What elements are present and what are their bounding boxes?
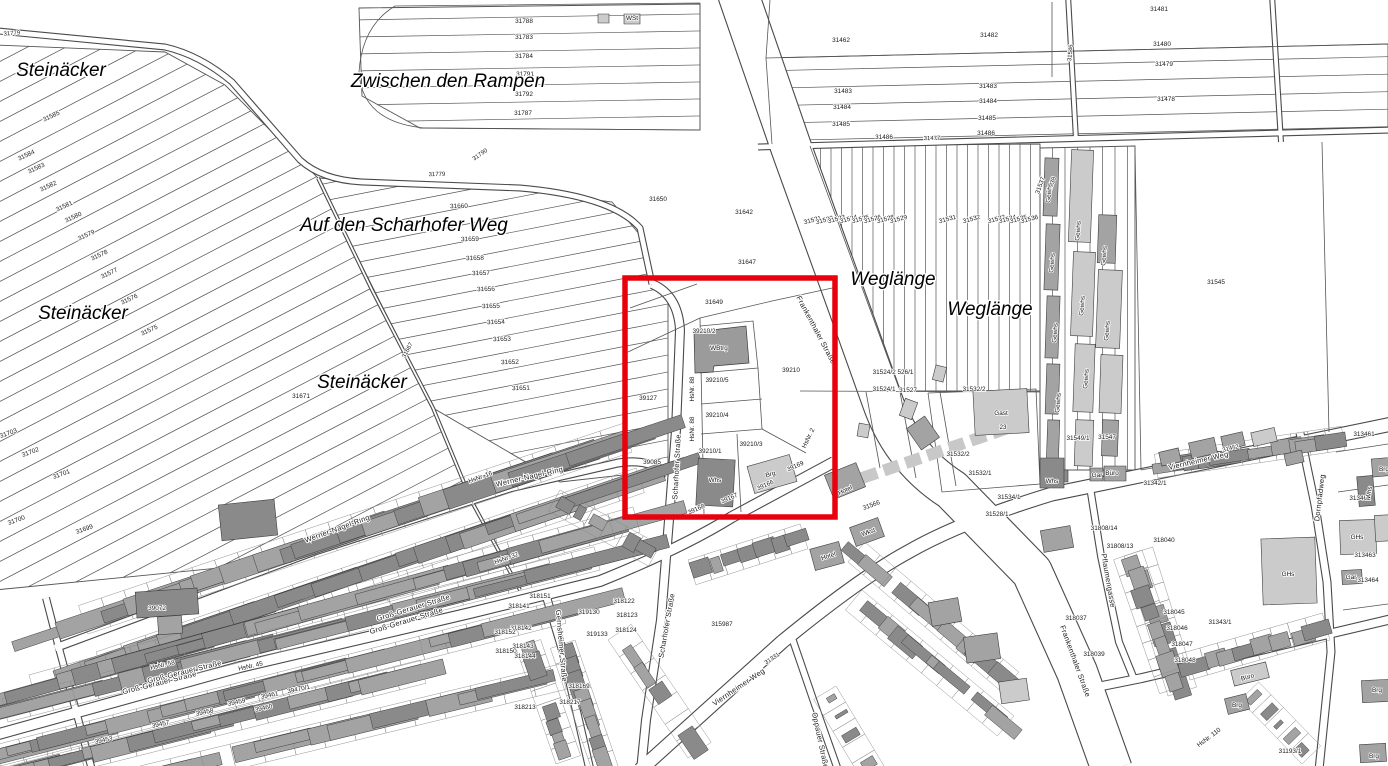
parcel-number-label: 318047: [1171, 641, 1193, 648]
parcel-number-label: 31484: [833, 104, 851, 111]
parcel-number-label: 39210/4: [705, 412, 729, 419]
area-label: Auf den Scharhofer Weg: [299, 215, 508, 236]
parcel-number-label: 318037: [1065, 615, 1087, 622]
parcel-number-label: 318039: [1083, 651, 1105, 658]
parcel-number-label: 31527: [899, 387, 917, 394]
building-footprint: [157, 615, 182, 635]
parcel-number-label: 31545: [1207, 279, 1225, 286]
parcel-number-label: 318144: [514, 653, 536, 660]
house-number-label: HsNr. 88: [689, 416, 696, 441]
parcel-number-label: 31788: [515, 18, 533, 25]
building-label: Whs: [709, 477, 722, 484]
area-label: Weglänge: [947, 299, 1032, 320]
parcel-number-label: 31652: [501, 359, 519, 367]
building-footprint: [963, 633, 1000, 663]
building-footprint: [928, 598, 962, 627]
parcel-number-label: 31649: [705, 299, 723, 306]
parcel-number-label: 31532/2: [962, 386, 986, 393]
parcel-number-label: 31654: [487, 319, 505, 327]
building-label: Gast: [994, 410, 1008, 417]
parcel-number-label: 31653: [493, 336, 511, 344]
parcel-number-label: 39210/3: [739, 441, 763, 448]
parcel-number-label: 31343/1: [1208, 619, 1232, 626]
building-footprint: [218, 499, 277, 541]
parcel-number-label: 31784: [515, 53, 533, 60]
parcel-number-label: 31483: [834, 88, 852, 95]
parcel-number-label: 318151: [529, 593, 551, 600]
parcel-number-label: 31660: [450, 203, 468, 211]
parcel-number-label: 31659: [461, 236, 479, 244]
parcel-number-label: 31524/1: [872, 386, 896, 393]
parcel-number-label: 313464: [1357, 577, 1379, 584]
parcel-number-label: 31671: [292, 393, 310, 400]
building-footprint: [1046, 420, 1060, 464]
parcel-number-label: 31193/1: [1279, 748, 1302, 755]
parcel-number-label: 31532/1: [968, 470, 992, 477]
parcel-number-label: 31342/1: [1143, 480, 1167, 487]
building-footprint: [1071, 252, 1096, 337]
building-footprint: [999, 678, 1030, 704]
building-footprint: [1074, 420, 1094, 467]
parcel-number-label: 31486: [875, 134, 893, 141]
parcel-number-label: 318122: [613, 598, 635, 605]
area-label: Steinäcker: [317, 372, 407, 393]
parcel-number-label: 39210/5: [705, 377, 729, 384]
parcel-number-label: 31524/2 526/1: [873, 369, 914, 376]
parcel-number-label: 31481: [1150, 6, 1168, 13]
parcel-number-label: 315987: [711, 621, 733, 628]
road-number-label: 31779: [429, 172, 447, 179]
parcel-number-label: 31808/14: [1091, 525, 1118, 532]
building-label: Büro: [1105, 470, 1119, 477]
parcel-number-label: 31480: [1153, 41, 1171, 48]
building-label: Brg: [1232, 702, 1242, 709]
parcel-number-label: 39127: [639, 395, 657, 402]
building-footprint: [1374, 514, 1388, 541]
parcel-number-label: 31549/1: [1066, 435, 1090, 442]
building-label: Brg: [1379, 466, 1388, 473]
parcel-number-label: 31783: [515, 34, 533, 41]
building-label: GHs: [1282, 571, 1295, 578]
parcel-number-label: 31483: [979, 83, 997, 90]
parcel-number-label: 31656: [477, 286, 495, 294]
parcel-number-label: 31534/1: [997, 494, 1021, 501]
parcel-number-label: 31479: [1155, 61, 1173, 68]
building-label: WBtrg: [710, 345, 728, 352]
house-number-label: HsNr. 88: [689, 376, 696, 401]
parcel-number-label: 31651: [512, 385, 530, 393]
parcel-number-label: 31462: [832, 37, 850, 44]
parcel-number-label: 318046: [1166, 625, 1188, 632]
parcel-number-label: 31528/1: [985, 511, 1009, 518]
parcel-number-label: 318169: [568, 683, 590, 690]
parcel-number-label: 318217: [559, 699, 581, 706]
parcel-number-label: 31655: [482, 303, 500, 311]
parcel-number-label: 31657: [472, 270, 490, 278]
parcel-number-label: 313461: [1353, 431, 1375, 438]
building-footprint: [135, 588, 199, 618]
parcel-number-label: 31792: [515, 91, 533, 98]
parcel-number-label: 318152: [494, 629, 516, 636]
parcel-number-label: 31642: [735, 209, 753, 216]
parcel-number-label: 31532/2: [946, 451, 970, 458]
parcel-number-label: 31486: [977, 130, 995, 137]
parcel-number-label: 39085: [643, 459, 661, 466]
parcel-number-label: 318141: [508, 603, 530, 610]
parcel-number-label: 31808/13: [1107, 543, 1134, 550]
building-label: Brg: [1372, 687, 1382, 694]
parcel-number-label: 318045: [1163, 609, 1185, 616]
cadastral-map-canvas[interactable]: 3158531584315833158231581315803157931578…: [0, 0, 1388, 766]
area-label: Steinäcker: [16, 60, 106, 81]
parcel-number-label: 31658: [466, 255, 484, 263]
building-label: 23: [999, 424, 1007, 431]
building-label: Brg: [1369, 753, 1379, 760]
building-label: Gar: [1092, 472, 1104, 479]
parcel-number-label: 39210: [782, 367, 800, 374]
parcel-number-label: 39072: [148, 605, 166, 612]
parcel-number-label: 31650: [649, 196, 667, 203]
parcel-number-label: 31647: [738, 259, 756, 266]
parcel-number-label: 318040: [1153, 537, 1175, 544]
parcel-number-label: 39210/2: [692, 328, 716, 335]
building-label: GHs: [1351, 534, 1364, 541]
parcel-number-label: 318048: [1174, 657, 1196, 664]
parcel-number-label: 318123: [616, 612, 638, 619]
parcel-number-label: 31482: [980, 32, 998, 39]
parcel-number-label: 31787: [514, 110, 532, 117]
building-footprint: [1099, 355, 1123, 414]
building-footprint: [598, 14, 609, 23]
parcel-number-label: 31547: [1098, 434, 1116, 441]
parcel-number-label: 319133: [586, 631, 608, 638]
parcel-number-label: 318124: [615, 627, 637, 634]
parcel-number-label: 31485: [832, 121, 850, 128]
area-label: Weglänge: [850, 269, 935, 290]
parcel-number-label: 319130: [578, 609, 600, 616]
building-label: WSt: [626, 15, 638, 22]
road-number-label: 31477: [924, 136, 941, 142]
parcel-number-label: 39210/1: [698, 448, 722, 455]
parcel-number-label: 31478: [1157, 96, 1175, 103]
parcel-number-label: 31485: [978, 115, 996, 122]
building-footprint: [857, 423, 870, 438]
map-viewport[interactable]: 3158531584315833158231581315803157931578…: [0, 0, 1388, 766]
building-label: Whs: [1046, 478, 1059, 485]
parcel-number-label: 318213: [514, 704, 536, 711]
parcel-number-label: 31484: [979, 98, 997, 105]
area-label: Steinäcker: [38, 303, 128, 324]
building-footprint: [1040, 526, 1073, 553]
area-label: Zwischen den Rampen: [350, 71, 545, 92]
parcel-number-label: 313463: [1354, 552, 1376, 559]
building-label: Gar: [1346, 574, 1358, 581]
